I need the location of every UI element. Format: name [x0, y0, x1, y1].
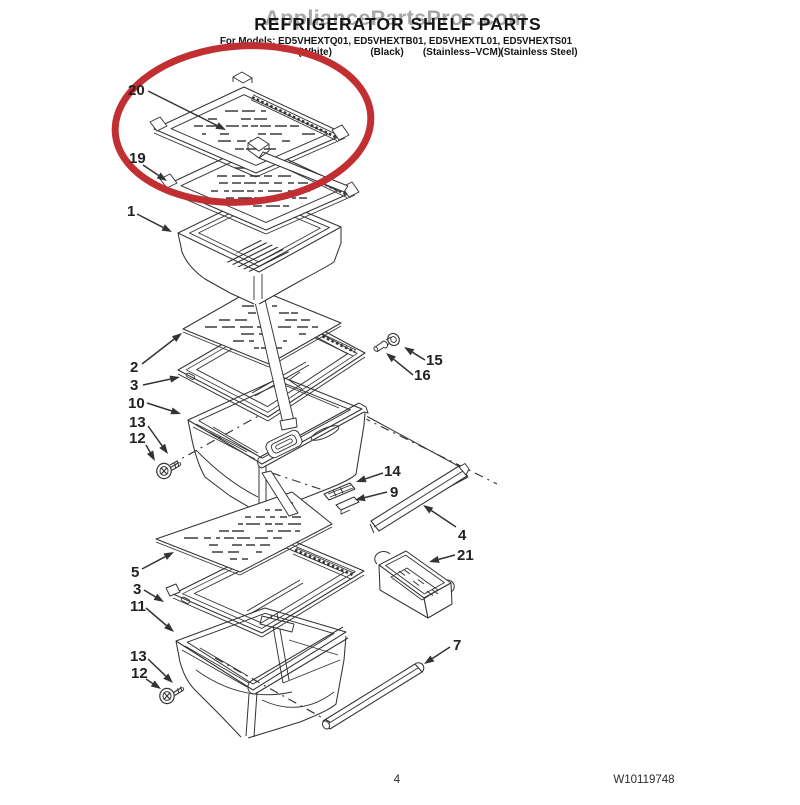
svg-text:3: 3 [133, 581, 141, 598]
svg-text:9: 9 [390, 484, 398, 501]
svg-text:14: 14 [384, 463, 401, 480]
svg-text:21: 21 [457, 547, 474, 564]
svg-text:4: 4 [458, 527, 467, 544]
svg-text:5: 5 [131, 564, 139, 581]
svg-text:16: 16 [414, 367, 431, 384]
svg-text:(Stainless Steel): (Stainless Steel) [500, 47, 577, 58]
svg-text:1: 1 [127, 203, 135, 220]
svg-text:4: 4 [394, 774, 401, 786]
svg-text:20: 20 [128, 82, 145, 99]
svg-text:11: 11 [130, 598, 146, 615]
svg-text:3: 3 [130, 377, 138, 394]
svg-text:12: 12 [131, 665, 148, 682]
svg-text:10: 10 [128, 395, 145, 412]
svg-text:12: 12 [129, 430, 146, 447]
svg-text:13: 13 [130, 648, 147, 665]
svg-text:REFRIGERATOR SHELF PARTS: REFRIGERATOR SHELF PARTS [254, 14, 541, 34]
svg-text:(Black): (Black) [370, 47, 403, 58]
svg-text:19: 19 [129, 150, 146, 167]
svg-text:13: 13 [129, 414, 146, 431]
svg-text:W10119748: W10119748 [613, 774, 674, 786]
svg-text:(Stainless–VCM): (Stainless–VCM) [423, 47, 501, 58]
svg-text:7: 7 [453, 637, 461, 654]
svg-text:2: 2 [130, 359, 138, 376]
